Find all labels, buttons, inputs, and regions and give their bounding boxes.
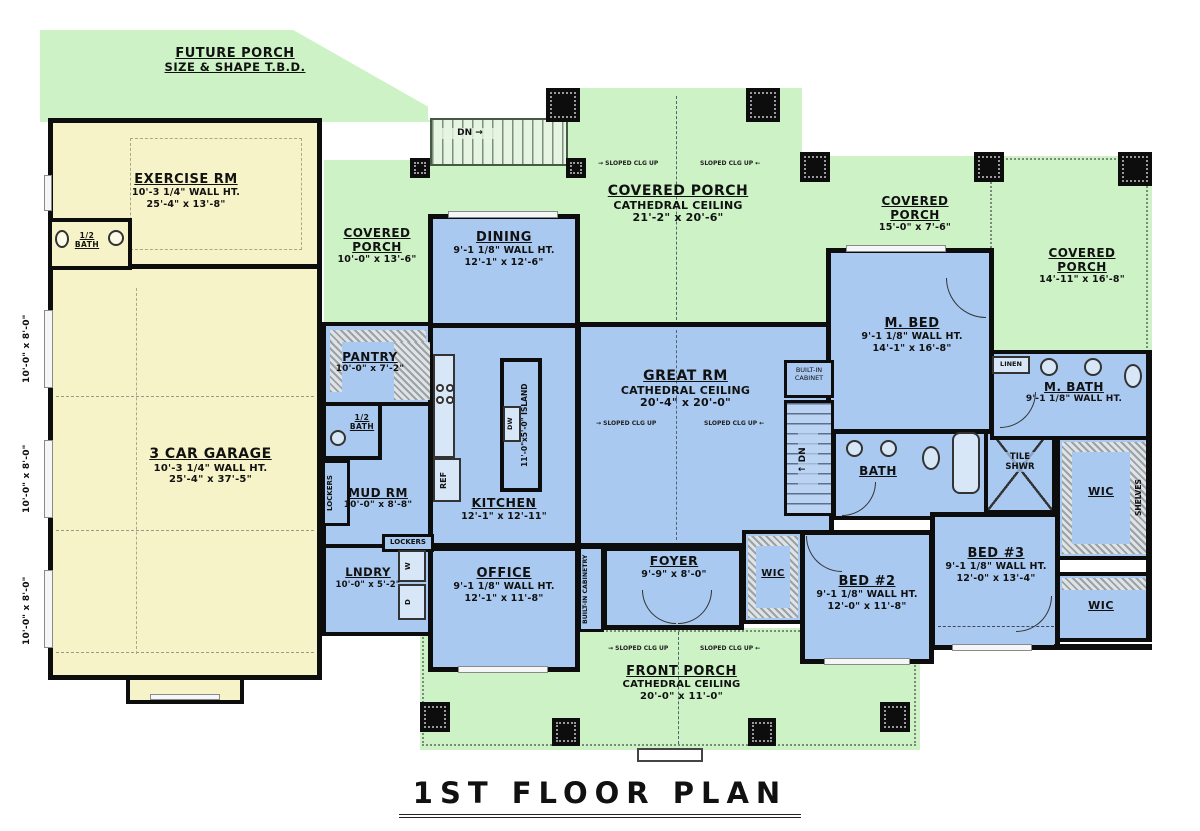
foyer-label: FOYER 9'-9" x 8'-0" (612, 554, 736, 580)
kitchen-label: KITCHEN 12'-1" x 12'-11" (444, 496, 564, 522)
ref-label: REF (439, 466, 455, 494)
garage-bay-line (56, 530, 314, 531)
porch-column (880, 702, 910, 732)
porch-column (420, 702, 450, 732)
covered-porch-right-label: COVERED PORCH 14'-11" x 16'-8" (1018, 246, 1146, 286)
master-bed-label: M. BED 9'-1 1/8" WALL HT. 14'-1" x 16'-8… (842, 316, 982, 354)
lockers-label: LOCKERS (384, 538, 432, 546)
window (458, 666, 548, 673)
garage-door-size: 10'-0" x 8'-0" (22, 306, 40, 392)
washer-label: W (404, 556, 420, 576)
covered-porch-mid-label: COVERED PORCH 15'-0" x 7'-6" (856, 194, 974, 234)
sloped-clg-arrow: SLOPED CLG UP ← (700, 645, 760, 652)
porch-column (1118, 152, 1152, 186)
garage-door (44, 310, 53, 388)
porch-column (410, 158, 430, 178)
burner-icon (436, 384, 444, 392)
porch-cutout (802, 86, 990, 156)
covered-porch-center-label: COVERED PORCH CATHEDRAL CEILING 21'-2" x… (578, 183, 778, 225)
lockers-label: LOCKERS (326, 464, 346, 522)
garage-bay-line (56, 396, 314, 397)
window (846, 245, 946, 252)
wic-label: WIC (1072, 600, 1130, 613)
future-porch-label: FUTURE PORCH SIZE & SHAPE T.B.D. (120, 46, 350, 75)
window (150, 694, 220, 700)
bed2-label: BED #2 9'-1 1/8" WALL HT. 12'-0" x 11'-8… (806, 574, 928, 612)
built-in-cabinet-label: BUILT-IN CABINET (786, 366, 832, 382)
pantry-shelving (330, 330, 426, 342)
sink-icon (1040, 358, 1058, 376)
office-label: OFFICE 9'-1 1/8" WALL HT. 12'-1" x 11'-8… (438, 566, 570, 604)
front-porch-label: FRONT PORCH CATHEDRAL CEILING 20'-0" x 1… (594, 664, 769, 703)
exercise-label: EXERCISE RM 10'-3 1/4" WALL HT. 25'-4" x… (96, 172, 276, 210)
sloped-clg-arrow: → SLOPED CLG UP (596, 420, 656, 427)
porch-column (800, 152, 830, 182)
burner-icon (446, 396, 454, 404)
window (44, 175, 52, 211)
sink-icon (846, 440, 863, 457)
tile-shower-label: TILE SHWR (988, 452, 1052, 472)
ridge-line (676, 330, 677, 540)
island-label: 11'-0"x5'-0" ISLAND (520, 364, 536, 486)
porch-column (974, 152, 1004, 182)
range-counter (433, 354, 455, 458)
linen-label: LINEN (993, 361, 1029, 369)
porch-column (746, 88, 780, 122)
pantry-label: PANTRY 10'-0" x 7'-2" (332, 350, 408, 375)
dw-label: DW (506, 414, 518, 434)
porch-column (566, 158, 586, 178)
porch-column (748, 718, 776, 746)
garage-door (44, 440, 53, 518)
floor-plan: FUTURE PORCH SIZE & SHAPE T.B.D. COVERED… (0, 0, 1200, 831)
wic-label: WIC (1072, 486, 1130, 499)
sink-icon (1084, 358, 1102, 376)
sink-icon (330, 430, 346, 446)
garage-door-size: 10'-0" x 8'-0" (22, 436, 40, 522)
window (448, 211, 558, 218)
window (952, 644, 1032, 651)
sloped-clg-arrow: → SLOPED CLG UP (608, 645, 668, 652)
laundry-label: LNDRY 10'-0" x 5'-2" (326, 566, 410, 590)
ceiling-break-line (938, 626, 1054, 627)
covered-porch-left-label: COVERED PORCH 10'-0" x 13'-6" (326, 226, 428, 266)
exterior-stairs (430, 118, 568, 166)
porch-cutout (428, 86, 554, 120)
garage-label: 3 CAR GARAGE 10'-3 1/4" WALL HT. 25'-4" … (118, 446, 303, 486)
garage-door-size: 10'-0" x 8'-0" (22, 568, 40, 654)
stairs-dn-label: DN → (440, 128, 500, 139)
dryer-label: D (404, 592, 420, 612)
great-room-label: GREAT RM CATHEDRAL CEILING 20'-4" x 20'-… (598, 368, 773, 410)
built-in-cabinetry-label: BUILT-IN CABINETRY (582, 550, 600, 628)
wic-shelving (1062, 578, 1146, 590)
sloped-clg-arrow: SLOPED CLG UP ← (700, 160, 760, 167)
window (824, 658, 910, 665)
porch-column (552, 718, 580, 746)
sloped-clg-arrow: → SLOPED CLG UP (598, 160, 658, 167)
porch-column (546, 88, 580, 122)
stairs-dn-label: ↑ DN (798, 430, 818, 490)
garage-door (44, 570, 53, 648)
shelves-label: SHELVES (1134, 466, 1148, 530)
outer-wall (1054, 644, 1152, 650)
office-room (428, 546, 580, 672)
tub-icon (952, 432, 980, 494)
bath-label: BATH (846, 464, 910, 478)
sink-icon (108, 230, 124, 246)
toilet-icon (922, 446, 940, 470)
burner-icon (436, 396, 444, 404)
sink-icon (880, 440, 897, 457)
burner-icon (446, 384, 454, 392)
plan-title: 1ST FLOOR PLAN (0, 776, 1200, 810)
future-porch-area (40, 30, 442, 122)
garage-bay-line (56, 652, 314, 653)
wic-label: WIC (752, 568, 794, 580)
master-bath-label: M. BATH 9'-1 1/8" WALL HT. (1008, 380, 1140, 405)
sloped-clg-arrow: SLOPED CLG UP ← (704, 420, 764, 427)
bed3-label: BED #3 9'-1 1/8" WALL HT. 12'-0" x 13'-4… (936, 546, 1056, 584)
entry-steps (637, 748, 703, 762)
half-bath-label: 1/2 BATH (344, 414, 380, 432)
dining-label: DINING 9'-1 1/8" WALL HT. 12'-1" x 12'-6… (438, 230, 570, 268)
half-bath-label: 1/2 BATH (66, 232, 108, 250)
